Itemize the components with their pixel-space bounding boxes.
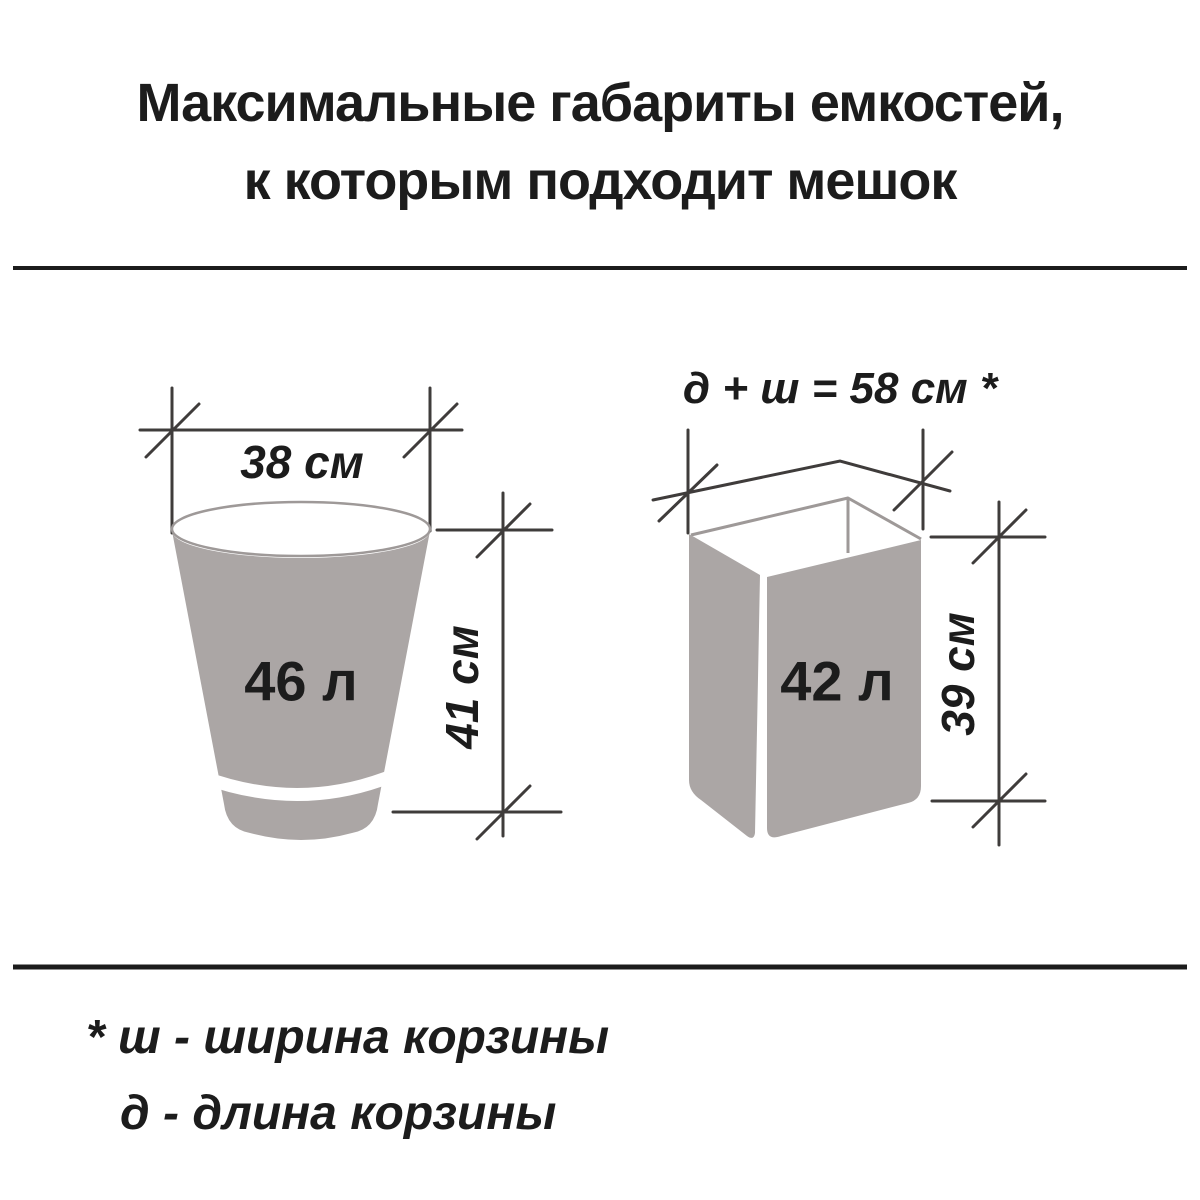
bucket-volume-label: 46 л bbox=[244, 649, 357, 714]
bin-rim-outline bbox=[691, 498, 921, 553]
bin-dimension-formula: д + ш = 58 см * bbox=[683, 364, 997, 414]
bin-volume-label: 42 л bbox=[780, 649, 893, 714]
bucket-height-label: 41 см bbox=[435, 625, 489, 749]
bucket-width-label: 38 см bbox=[240, 435, 364, 489]
bent-dimension-line bbox=[653, 461, 950, 500]
bin-rim-back-edges bbox=[691, 498, 921, 539]
bucket-rim bbox=[172, 502, 430, 556]
page-title: Максимальные габариты емкостей, к которы… bbox=[0, 64, 1200, 220]
title-line-1: Максимальные габариты емкостей, bbox=[0, 64, 1200, 142]
infographic: Максимальные габариты емкостей, к которы… bbox=[0, 0, 1200, 1200]
bin-left-face bbox=[689, 534, 760, 838]
footnote-line-1: * ш - ширина корзины bbox=[86, 1000, 609, 1076]
footnote: * ш - ширина корзины д - длина корзины bbox=[86, 1000, 609, 1152]
bin-height-label: 39 см bbox=[931, 612, 985, 736]
bin-top-dimension bbox=[653, 430, 952, 533]
footnote-line-2: д - длина корзины bbox=[120, 1076, 609, 1152]
title-line-2: к которым подходит мешок bbox=[0, 142, 1200, 220]
